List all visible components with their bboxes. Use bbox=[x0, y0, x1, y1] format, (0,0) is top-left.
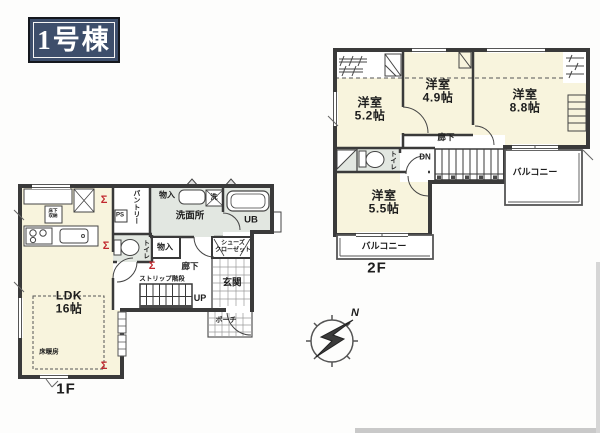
room-label-55: 洋室 5.5帖 bbox=[369, 190, 400, 217]
room-label-88: 洋室 8.8帖 bbox=[510, 89, 541, 116]
fridge-space bbox=[74, 189, 94, 212]
room-label-52: 洋室 5.2帖 bbox=[355, 97, 386, 124]
entrance-label: 玄関 bbox=[222, 279, 241, 290]
balcony-right-label: バルコニー bbox=[513, 167, 558, 177]
scan-edge-bottom bbox=[355, 428, 600, 433]
toilet-2f-label: トイレ bbox=[388, 150, 395, 170]
dn-label: DN bbox=[419, 154, 431, 163]
strip-stairs-label: ストリップ階段 bbox=[139, 275, 185, 282]
up-label: UP bbox=[194, 293, 207, 303]
corridor-1f-label: 廊下 bbox=[181, 262, 198, 272]
kitchen-cabinet bbox=[24, 189, 72, 204]
floor1-label: 1F bbox=[56, 382, 76, 399]
toilet-1f-icon bbox=[114, 240, 139, 256]
toilet-1f-label: トイレ bbox=[141, 239, 148, 259]
floorplan-drawing bbox=[0, 0, 600, 433]
sink-icon bbox=[60, 229, 88, 243]
washroom-label: 洗面所 bbox=[176, 212, 205, 223]
underfloor-storage-label: 床下 収納 bbox=[49, 209, 58, 219]
vanity-icon bbox=[179, 190, 205, 204]
floor2-label: 2F bbox=[367, 261, 387, 278]
unit-bath-label: UB bbox=[244, 216, 258, 227]
room-label-49: 洋室 4.9帖 bbox=[423, 79, 454, 106]
bathtub-icon bbox=[227, 191, 269, 211]
room-label-ldk: LDK 16帖 bbox=[56, 290, 83, 317]
floorplan-page: 1号棟 LDK 16帖 床暖房 パントリー PS 物入 洗面所 洗 UB トイレ… bbox=[0, 0, 600, 433]
shutter-mark: Σ bbox=[101, 360, 108, 372]
porch-label: ポーチ bbox=[216, 317, 237, 325]
shutter-mark: Σ bbox=[101, 194, 108, 206]
shutter-mark: Σ bbox=[103, 240, 110, 252]
building-badge-label: 1号棟 bbox=[37, 27, 111, 54]
stairs-2f bbox=[435, 149, 505, 180]
storage-top-label: 物入 bbox=[159, 192, 175, 201]
compass-north-label: N bbox=[351, 307, 359, 319]
building-badge-frame: 1号棟 bbox=[33, 22, 115, 58]
storage-mid-label: 物入 bbox=[157, 244, 173, 253]
corridor-2f-label: 廊下 bbox=[437, 133, 454, 143]
pantry-label: パントリー bbox=[132, 190, 140, 225]
floor-heating-label: 床暖房 bbox=[39, 348, 59, 355]
scan-edge-right bbox=[596, 262, 600, 433]
shutter-mark: Σ bbox=[149, 260, 156, 272]
shoe-closet-label: シューズ クローゼット bbox=[215, 240, 251, 253]
balcony-bottom-label: バルコニー bbox=[362, 241, 407, 251]
floor2-drawing bbox=[328, 47, 593, 259]
compass-rose bbox=[306, 315, 358, 367]
ps-label: PS bbox=[116, 213, 124, 220]
stairs-1f bbox=[140, 284, 192, 309]
stove-icon bbox=[26, 228, 52, 244]
balcony-right-box bbox=[505, 150, 582, 205]
washer-label: 洗 bbox=[211, 194, 218, 202]
building-badge: 1号棟 bbox=[28, 17, 120, 63]
